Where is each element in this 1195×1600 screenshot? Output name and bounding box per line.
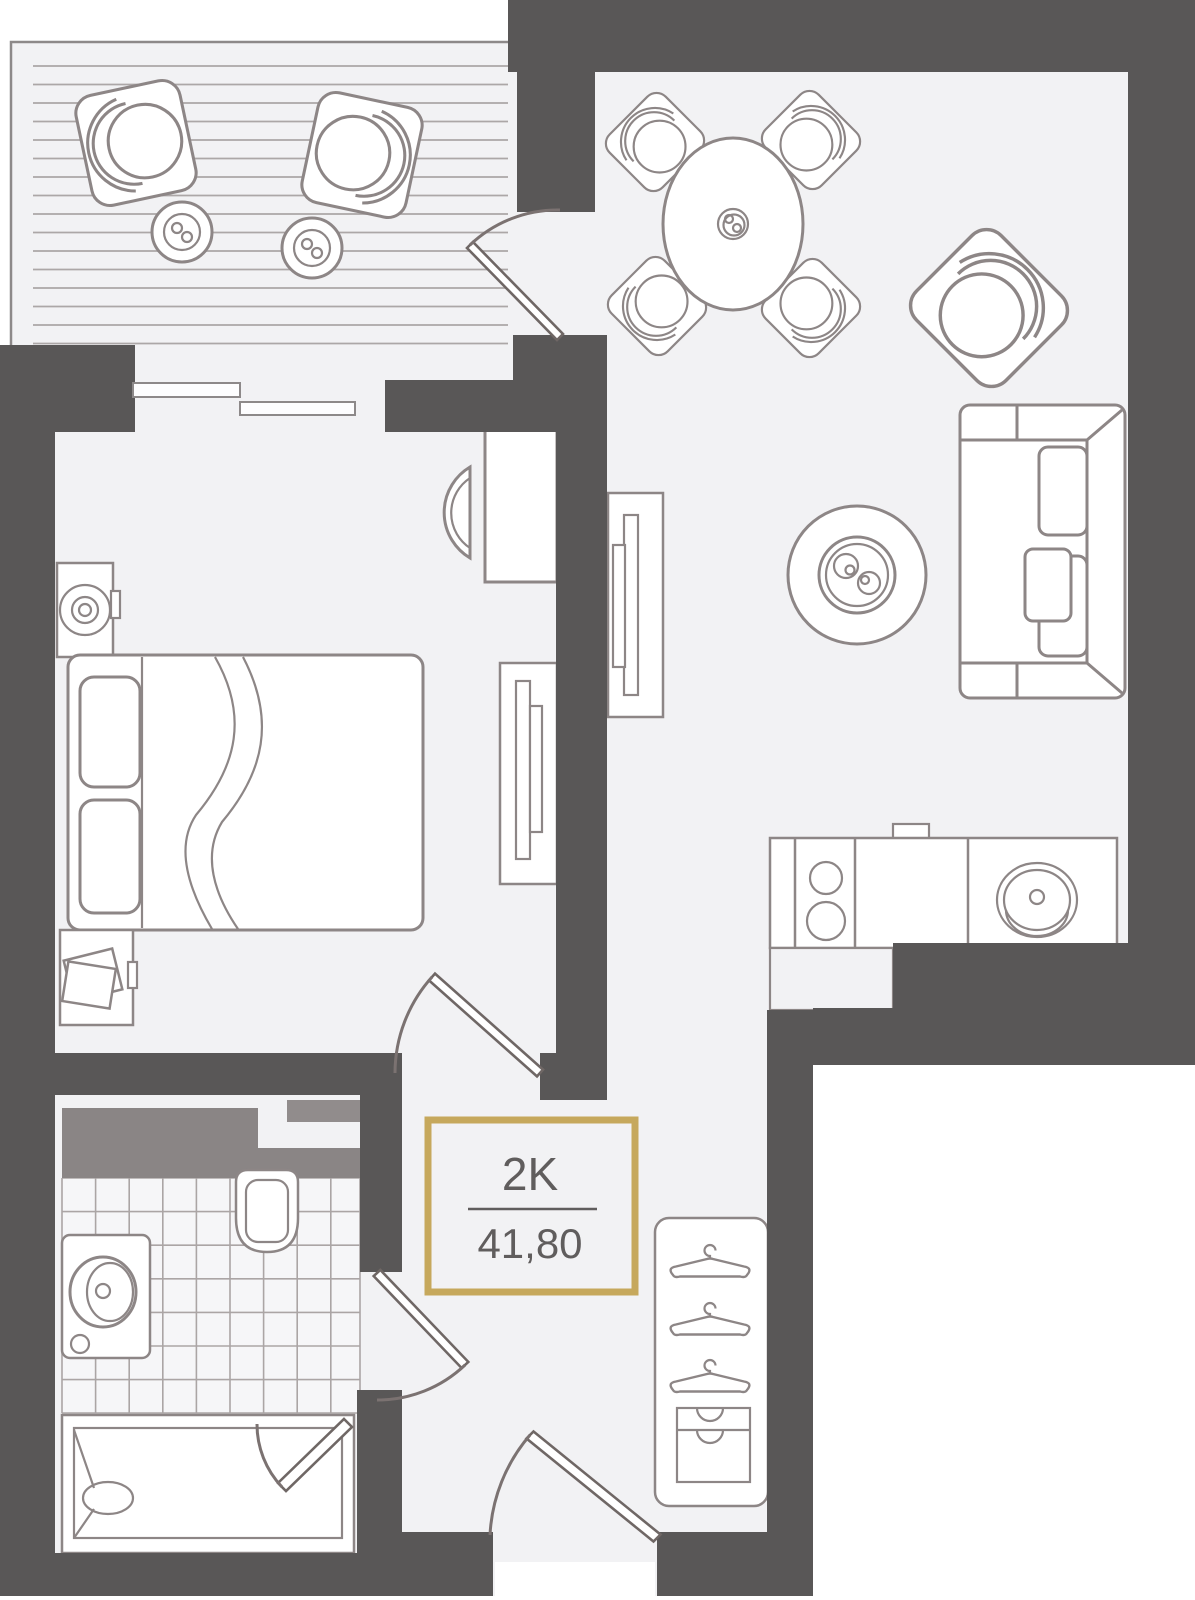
bathtub [62, 1415, 354, 1553]
window [133, 383, 240, 397]
round-dining-table [663, 138, 803, 310]
double-bed [68, 655, 423, 930]
side-table [282, 218, 342, 278]
nightstand-with-books [60, 930, 137, 1025]
area-label: 41,80 [477, 1220, 582, 1267]
counter-return [770, 948, 893, 1010]
bathroom [62, 1100, 360, 1553]
pillow [80, 800, 140, 913]
window [240, 402, 355, 415]
balcony-floor [11, 42, 508, 355]
entrance-threshold [495, 1562, 655, 1600]
lounge-chair [298, 89, 425, 221]
sofa-cushion [1025, 549, 1071, 621]
apartment-floor-plan[interactable]: 2K 41,80 [0, 0, 1195, 1600]
toilet [236, 1170, 298, 1252]
washbasin-cabinet [62, 1235, 150, 1358]
drawer-unit [677, 1408, 750, 1482]
sofa-cushion [1039, 447, 1087, 535]
unit-type-label: 2K [502, 1148, 559, 1200]
hall-wardrobe [608, 493, 663, 717]
side-table [152, 202, 212, 262]
nightstand-with-lamp [57, 563, 120, 657]
sliding-wardrobe [500, 663, 557, 884]
lounge-chair [72, 77, 199, 209]
ventilation-shaft [287, 1100, 360, 1122]
open-closet [655, 1218, 768, 1506]
sofa [960, 405, 1125, 698]
round-coffee-table [788, 506, 926, 644]
pillow [80, 677, 140, 787]
balcony [11, 42, 508, 355]
